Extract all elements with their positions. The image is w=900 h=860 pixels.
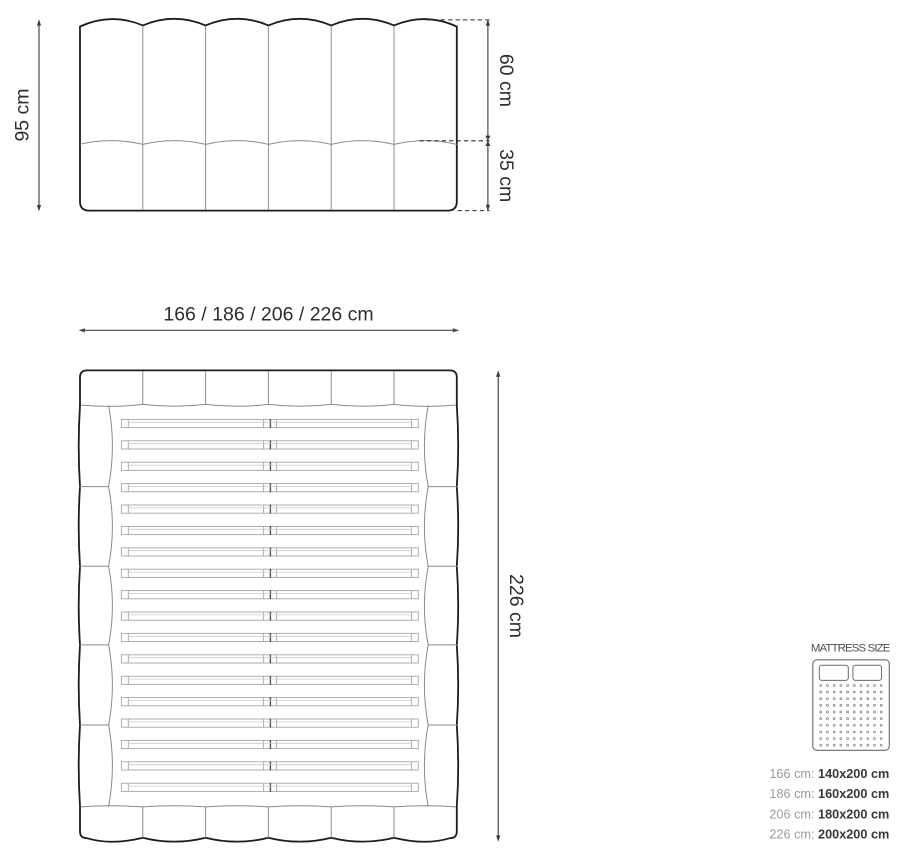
svg-text:226 cm: 226 cm <box>505 574 527 638</box>
svg-text:166 cm: 140x200 cm: 166 cm: 140x200 cm <box>769 767 889 781</box>
svg-text:35 cm: 35 cm <box>495 149 517 202</box>
svg-text:95 cm: 95 cm <box>12 88 34 141</box>
svg-text:MATTRESS SIZE: MATTRESS SIZE <box>811 643 891 655</box>
svg-text:186 cm: 160x200 cm: 186 cm: 160x200 cm <box>769 787 889 801</box>
svg-text:226 cm: 200x200 cm: 226 cm: 200x200 cm <box>769 828 889 842</box>
svg-text:206 cm: 180x200 cm: 206 cm: 180x200 cm <box>769 807 889 821</box>
svg-text:166 / 186 / 206 / 226 cm: 166 / 186 / 206 / 226 cm <box>163 304 373 326</box>
svg-text:60 cm: 60 cm <box>495 54 517 107</box>
